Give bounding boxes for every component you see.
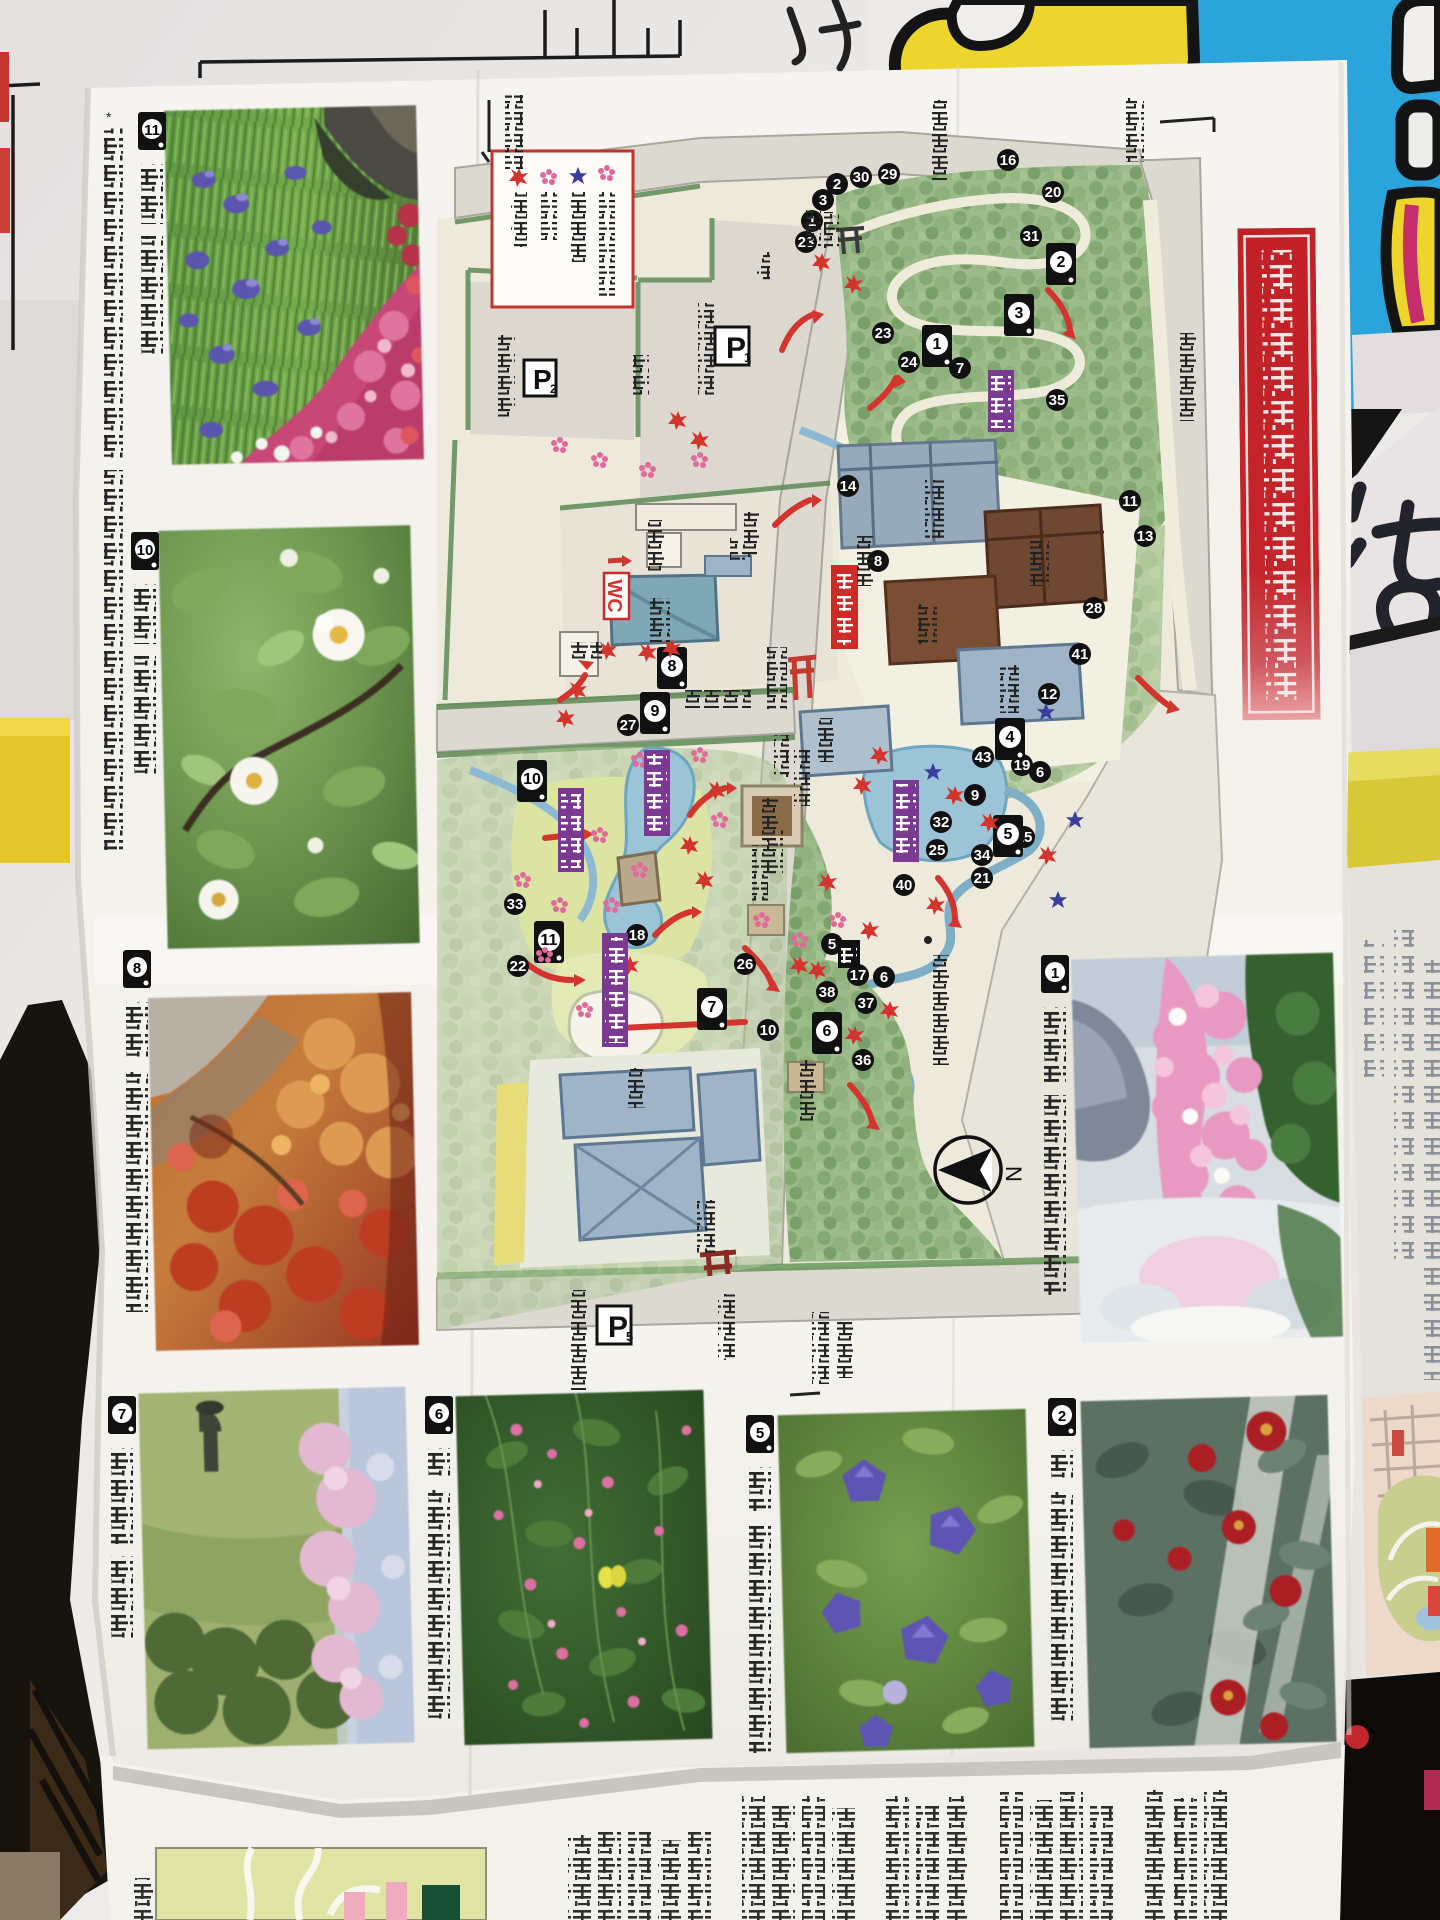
svg-text:2: 2 <box>833 176 841 193</box>
svg-text:8: 8 <box>668 658 677 675</box>
svg-text:10: 10 <box>137 542 154 559</box>
svg-text:7: 7 <box>708 999 717 1016</box>
svg-text:N: N <box>1001 1166 1026 1182</box>
svg-text:21: 21 <box>974 870 991 887</box>
svg-text:5: 5 <box>1004 826 1013 843</box>
svg-text:1: 1 <box>744 350 751 365</box>
svg-text:*: * <box>106 109 112 125</box>
svg-text:8: 8 <box>874 553 882 570</box>
svg-text:11: 11 <box>541 932 558 949</box>
svg-text:23: 23 <box>875 325 892 342</box>
svg-text:6: 6 <box>823 1023 832 1040</box>
svg-text:18: 18 <box>629 927 646 944</box>
svg-text:22: 22 <box>510 958 527 975</box>
svg-text:P: P <box>533 364 552 395</box>
svg-text:28: 28 <box>1086 600 1103 617</box>
svg-text:2: 2 <box>1057 254 1066 271</box>
svg-text:7: 7 <box>118 1406 126 1423</box>
svg-text:P: P <box>726 332 746 365</box>
svg-text:2: 2 <box>1058 1408 1066 1425</box>
svg-text:7: 7 <box>956 360 964 377</box>
svg-text:35: 35 <box>1049 392 1066 409</box>
svg-text:33: 33 <box>507 896 524 913</box>
svg-text:41: 41 <box>1072 646 1089 663</box>
svg-text:31: 31 <box>1023 228 1040 245</box>
svg-text:13: 13 <box>1137 528 1154 545</box>
svg-text:1: 1 <box>1051 965 1059 982</box>
svg-text:9: 9 <box>971 787 979 804</box>
svg-text:36: 36 <box>855 1052 872 1069</box>
svg-text:37: 37 <box>858 995 875 1012</box>
svg-text:5: 5 <box>626 1329 633 1344</box>
svg-text:17: 17 <box>850 967 867 984</box>
svg-text:27: 27 <box>620 717 637 734</box>
svg-text:38: 38 <box>819 984 836 1001</box>
svg-text:9: 9 <box>651 703 660 720</box>
svg-text:14: 14 <box>840 478 857 495</box>
svg-text:10: 10 <box>523 771 541 788</box>
svg-text:10: 10 <box>760 1022 777 1039</box>
svg-text:3: 3 <box>1015 305 1024 322</box>
svg-text:40: 40 <box>896 877 913 894</box>
svg-text:4: 4 <box>1006 729 1015 746</box>
svg-text:30: 30 <box>853 169 870 186</box>
svg-text:29: 29 <box>881 166 898 183</box>
svg-text:26: 26 <box>737 956 754 973</box>
svg-text:8: 8 <box>133 960 141 977</box>
svg-text:34: 34 <box>974 847 991 864</box>
svg-text:16: 16 <box>1000 152 1017 169</box>
svg-text:5: 5 <box>828 936 836 953</box>
svg-text:32: 32 <box>933 814 950 831</box>
svg-text:2: 2 <box>550 382 557 396</box>
svg-text:5: 5 <box>756 1425 764 1442</box>
svg-text:6: 6 <box>1036 764 1044 781</box>
svg-text:P: P <box>608 1311 628 1344</box>
svg-text:6: 6 <box>435 1406 443 1423</box>
svg-text:24: 24 <box>901 354 918 371</box>
svg-text:1: 1 <box>933 336 942 353</box>
svg-text:11: 11 <box>144 122 160 139</box>
svg-text:11: 11 <box>1122 493 1138 510</box>
svg-text:12: 12 <box>1041 686 1058 703</box>
svg-text:6: 6 <box>880 969 888 986</box>
svg-text:3: 3 <box>819 192 827 209</box>
svg-text:43: 43 <box>975 749 992 766</box>
svg-text:25: 25 <box>929 842 946 859</box>
svg-text:WC: WC <box>603 579 625 612</box>
svg-text:20: 20 <box>1045 184 1062 201</box>
